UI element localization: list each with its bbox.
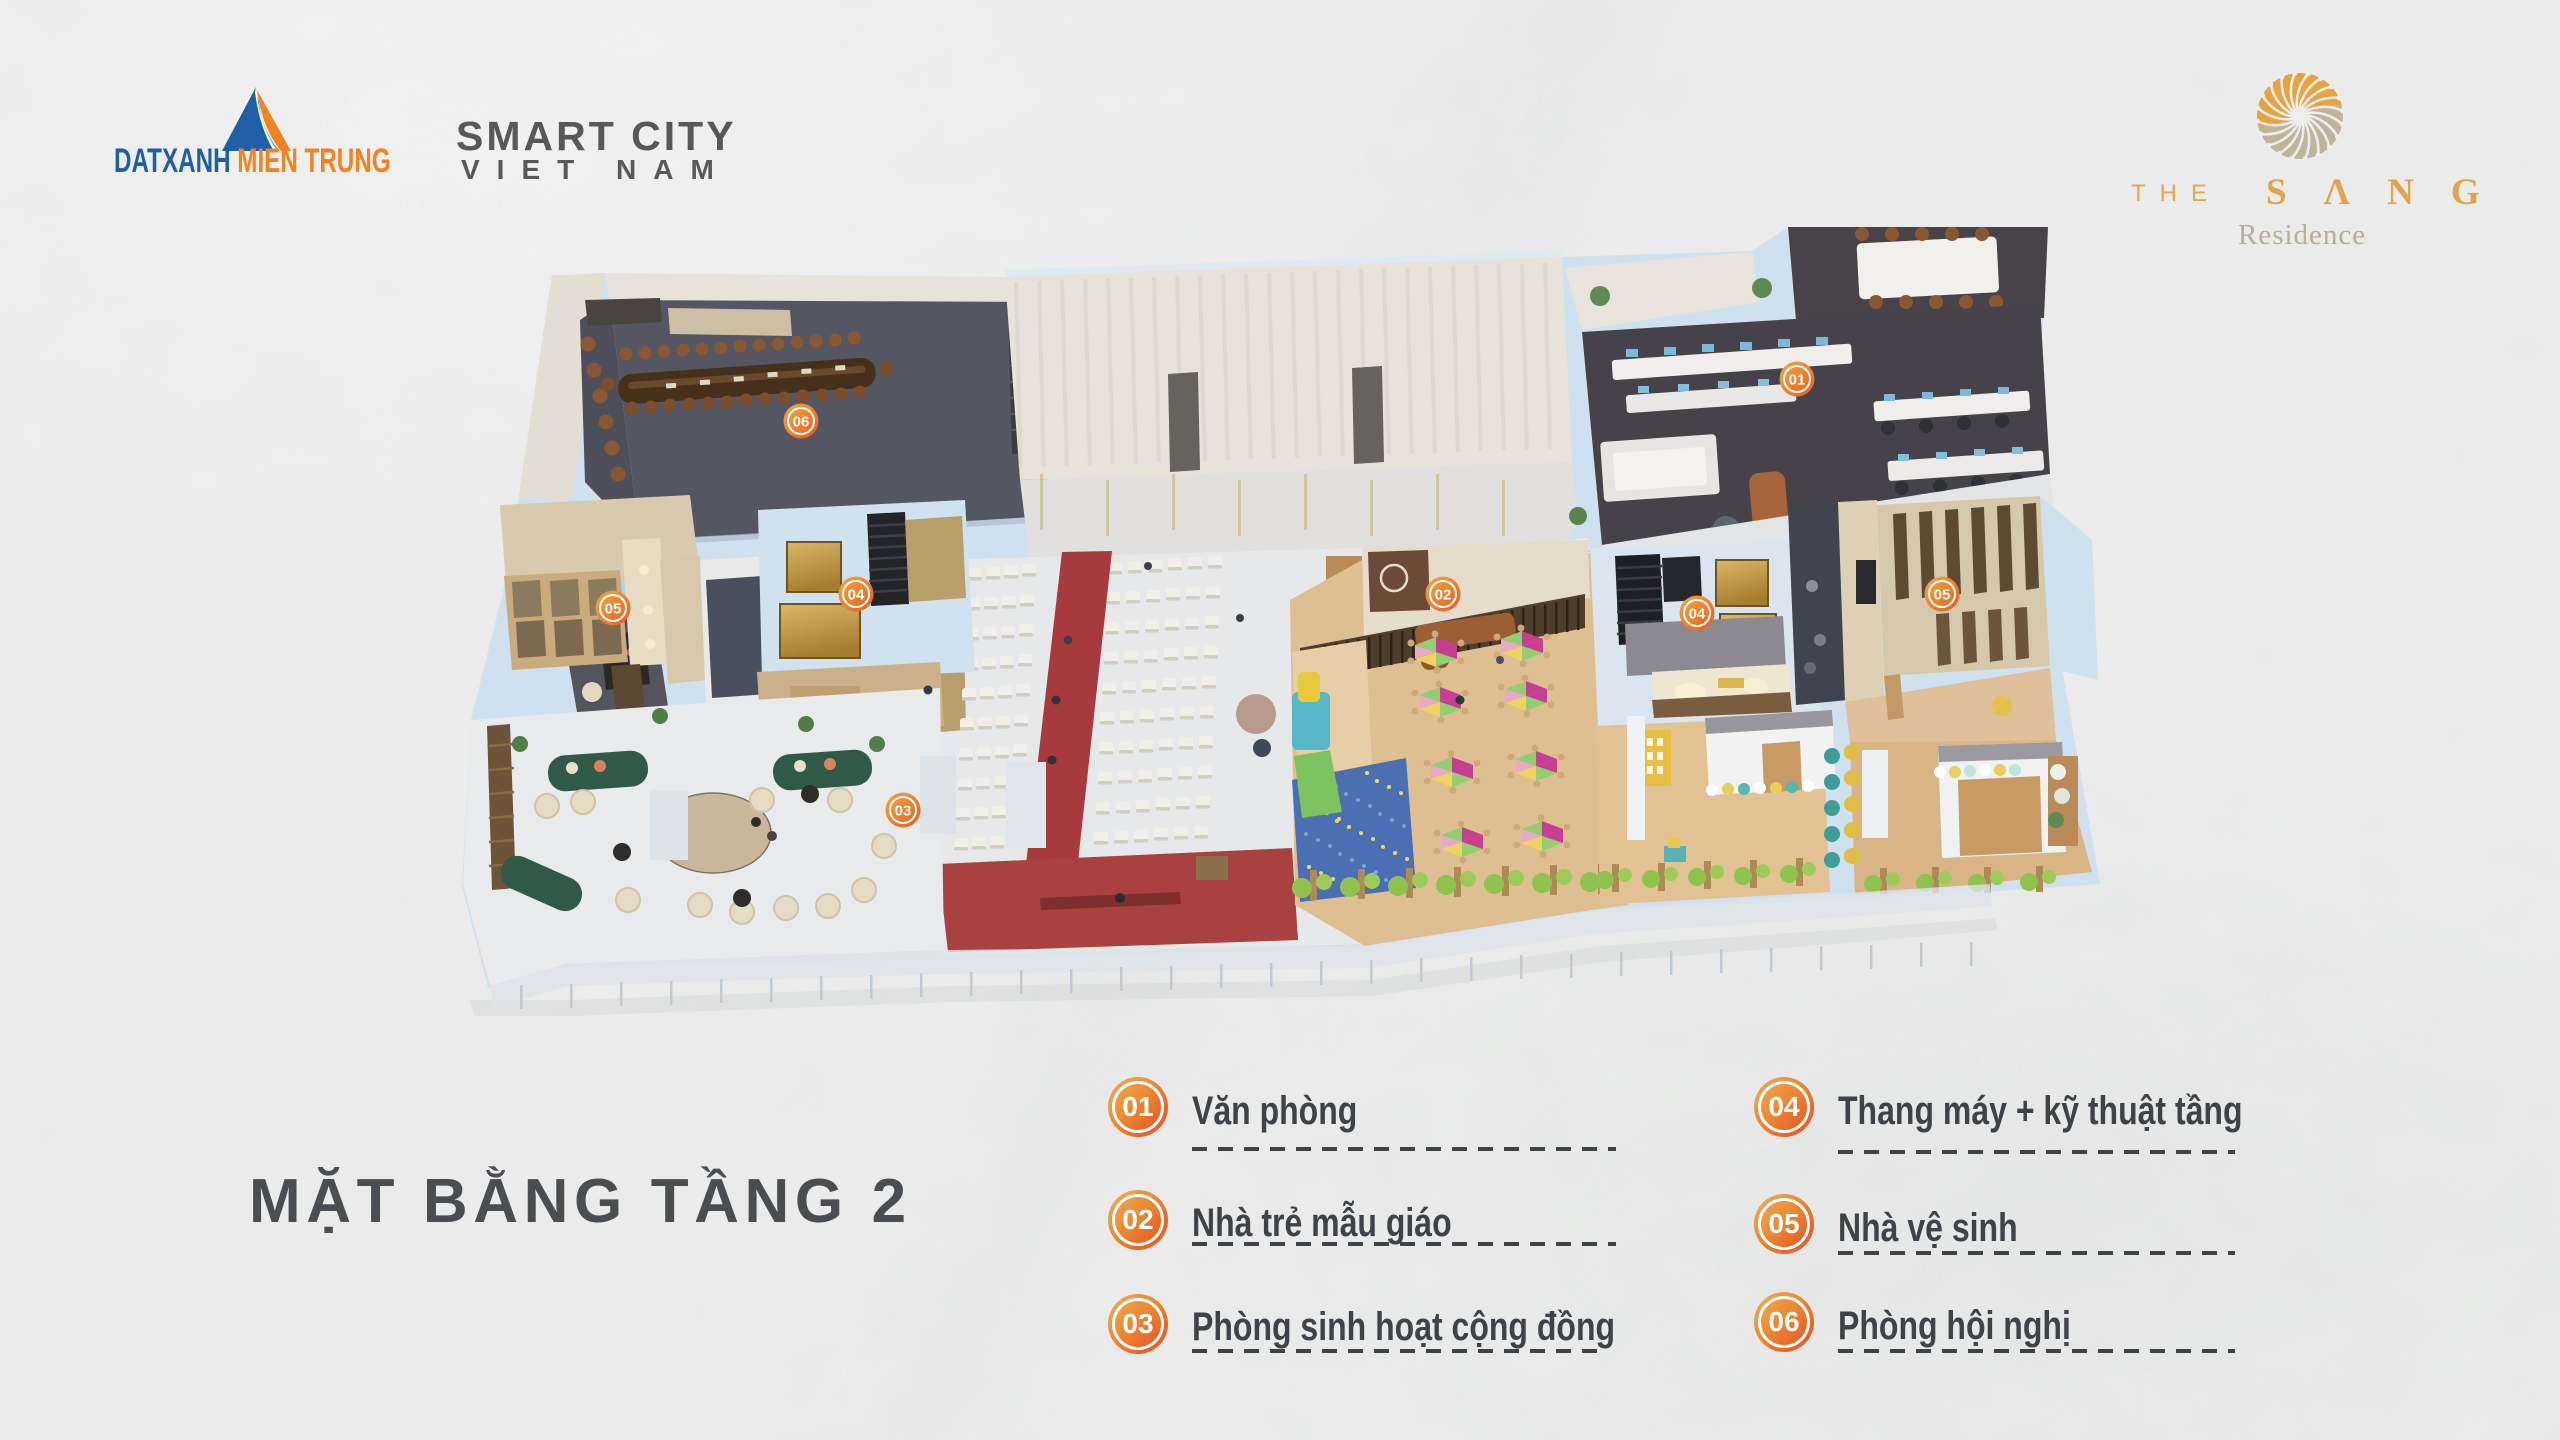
svg-text:02: 02 <box>1435 587 1452 604</box>
svg-text:03: 03 <box>895 803 912 820</box>
svg-text:06: 06 <box>793 414 810 431</box>
svg-text:05: 05 <box>1934 587 1951 604</box>
svg-text:05: 05 <box>605 601 622 618</box>
svg-text:01: 01 <box>1789 372 1806 389</box>
svg-text:04: 04 <box>1689 606 1706 623</box>
svg-text:04: 04 <box>848 587 865 604</box>
